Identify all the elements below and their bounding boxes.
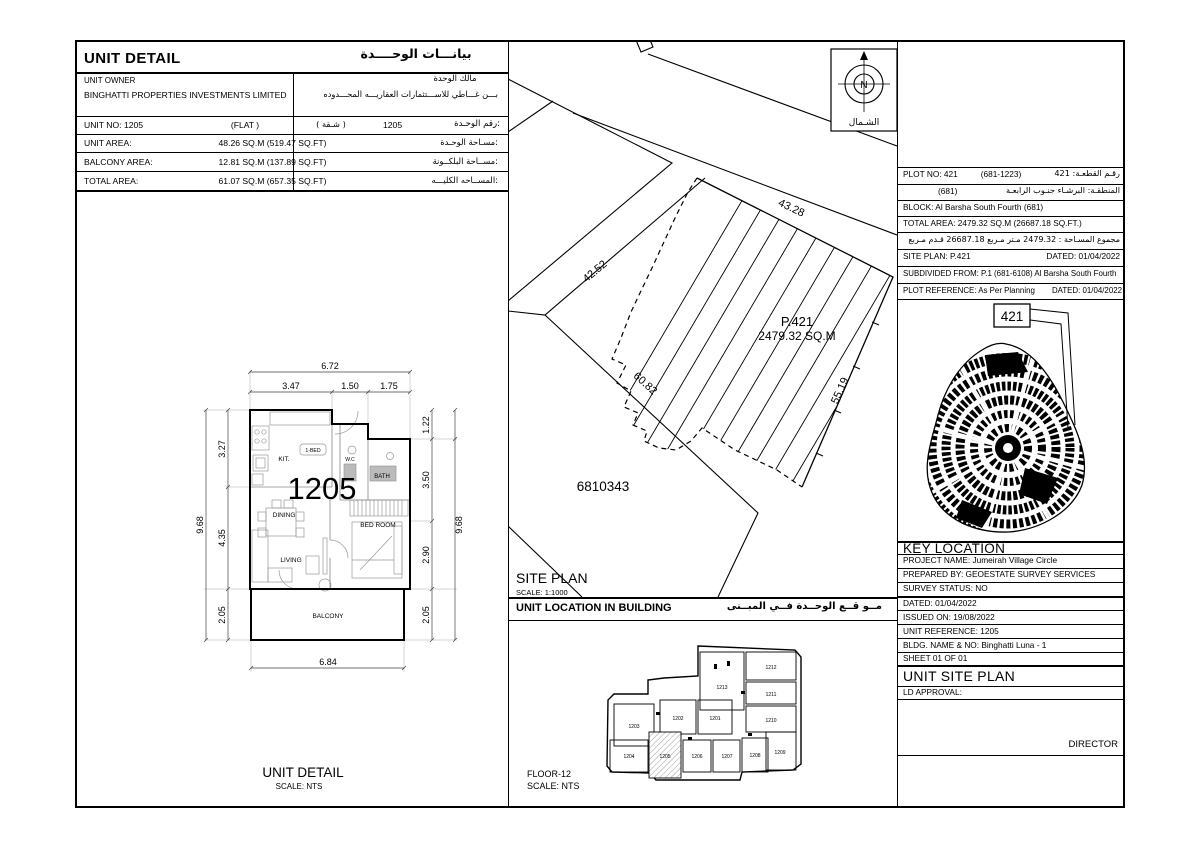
divider — [75, 116, 508, 117]
unit-label-1207: 1207 — [721, 754, 732, 760]
dim-right-4: 2.05 — [421, 606, 431, 624]
unit-floor-plan: 6.72 3.47 1.50 1.75 9.68 3.27 4.35 2.05 … — [75, 192, 508, 806]
divider — [897, 699, 1125, 700]
edge-road-dim: 42.52 — [581, 258, 610, 285]
edge-right-dim: 55.19 — [829, 376, 851, 406]
unit-label-1205: 1205 — [659, 754, 670, 760]
dim-right-1: 1.22 — [421, 416, 431, 434]
balcony-area-label-arabic: مســاحة البلكــونة: — [360, 157, 498, 167]
plot-no: PLOT NO: 421 — [903, 170, 958, 180]
divider — [75, 171, 508, 172]
dim-left-3: 2.05 — [217, 606, 227, 624]
north-compass: N الشـمال — [831, 49, 897, 131]
wc-label: W.C — [345, 457, 355, 463]
owner-label-arabic: مالك الوحدة — [410, 75, 500, 85]
dim-left-1: 3.27 — [217, 440, 227, 458]
total-area-label: TOTAL AREA: — [84, 177, 138, 187]
prepared-by-row: PREPARED BY: GEOESTATE SURVEY SERVICES — [903, 570, 1095, 580]
unit-detail-title: UNIT DETAIL — [84, 50, 181, 67]
divider — [897, 232, 1125, 233]
unit-label-1211: 1211 — [766, 692, 777, 698]
unit-no-value-arabic-side: 1205 — [383, 121, 402, 131]
dated-row: DATED: 01/04/2022 — [903, 599, 977, 609]
reference-dated: DATED: 01/04/2022 — [1040, 286, 1122, 295]
unit-area-label: UNIT AREA: — [84, 139, 132, 149]
bldg-name-row: BLDG. NAME & NO: Binghatti Luna - 1 — [903, 641, 1046, 651]
total-area-value: 61.07 SQ.M (657.35 SQ.FT) — [150, 177, 395, 187]
balcony-area-value: 12.81 SQ.M (137.89 SQ.FT) — [150, 158, 395, 168]
living-label: LIVING — [280, 557, 301, 564]
divider — [75, 134, 508, 135]
dim-left-2: 4.35 — [217, 529, 227, 547]
dim-top-total: 6.72 — [321, 361, 339, 371]
site-plan-dated: DATED: 01/04/2022 — [1000, 252, 1120, 262]
dim-right-3: 2.90 — [421, 546, 431, 564]
dim-left-total: 9.68 — [195, 516, 205, 534]
unit-reference-row: UNIT REFERENCE: 1205 — [903, 627, 999, 637]
ld-approval-row: LD APPROVAL: — [903, 688, 962, 698]
district-arabic: المنطقـة: البرشـاء جنـوب الرابعـة — [962, 186, 1120, 195]
dimension-lines — [204, 370, 457, 670]
project-name-row: PROJECT NAME: Jumeirah Village Circle — [903, 556, 1057, 566]
unit-label-1213: 1213 — [716, 685, 727, 691]
edge-bottom-dim: 60.82 — [631, 370, 659, 397]
building-panel-title: UNIT LOCATION IN BUILDING — [516, 602, 672, 615]
dim-right-2: 3.50 — [421, 471, 431, 489]
unit-label-1203: 1203 — [628, 724, 639, 730]
plot-area-label: 2479.32 SQ.M — [758, 329, 835, 343]
unit-label-1202: 1202 — [672, 716, 683, 722]
balcony-label: BALCONY — [312, 613, 344, 620]
extension-lines — [204, 370, 457, 672]
plot-number-label: P.421 — [781, 314, 813, 329]
district-paren: (681) — [938, 187, 957, 197]
site-plan-labels: 42.52 43.28 55.19 60.82 P.421 2479.32 SQ… — [516, 197, 851, 597]
owner-name-arabic: بـــن غـــاطي للاســـتثمارات العقاريـــه… — [300, 90, 498, 100]
neighbor-plot-label: 6810343 — [577, 479, 630, 494]
site-plan-title: SITE PLAN — [516, 570, 588, 586]
total-area-label-arabic: المســاحه الكليـــه: — [360, 176, 498, 186]
unit-type: (FLAT ) — [210, 121, 280, 131]
unit-label-1206: 1206 — [691, 754, 702, 760]
floor-plan-title: UNIT DETAIL — [262, 765, 344, 780]
plot-no-range: (681-1223) — [970, 170, 1032, 180]
block-row: BLOCK: Al Barsha South Fourth (681) — [903, 203, 1043, 213]
key-location-map: 421 — [897, 299, 1125, 541]
unit-no: UNIT NO: 1205 — [84, 121, 143, 131]
unit-no-label-arabic: رقم الوحـدة: — [410, 120, 502, 130]
bath-label: BATH — [374, 474, 390, 480]
building-door-marks — [656, 661, 752, 740]
compass-n-label: N — [860, 80, 867, 91]
edge-top-dim: 43.28 — [776, 197, 806, 220]
kitchen-label: KIT. — [278, 456, 289, 463]
total-area-row: TOTAL AREA: 2479.32 SQ.M (26687.18 SQ.FT… — [903, 219, 1082, 229]
dim-top-1: 3.47 — [282, 381, 300, 391]
building-panel-title-arabic: مــو قــع الوحــدة فــي المبــنى — [700, 601, 888, 613]
bedroom-label: BED ROOM — [360, 522, 395, 529]
sheet-row: SHEET 01 OF 01 — [903, 654, 967, 664]
owner-label: UNIT OWNER — [84, 76, 135, 85]
dimension-labels: 6.72 3.47 1.50 1.75 9.68 3.27 4.35 2.05 … — [195, 361, 464, 667]
unit-label-1210: 1210 — [765, 718, 776, 724]
building-floor-label: FLOOR-12 — [527, 769, 571, 779]
building-scale-label: SCALE: NTS — [527, 781, 580, 791]
unit-area-value: 48.26 SQ.M (519.47 SQ.FT) — [150, 139, 395, 149]
owner-name: BINGHATTI PROPERTIES INVESTMENTS LIMITED — [84, 91, 287, 101]
unit-number-label: 1205 — [288, 471, 357, 506]
dim-right-total: 9.68 — [454, 516, 464, 534]
floor-plan-scale: SCALE: NTS — [276, 782, 323, 791]
survey-status-row: SURVEY STATUS: NO — [903, 584, 988, 594]
issued-on-row: ISSUED ON: 19/08/2022 — [903, 613, 995, 623]
unit-area-label-arabic: مسـاحة الوحـدة: — [360, 138, 498, 148]
site-plan-scale: SCALE: 1:1000 — [516, 588, 568, 597]
unit-label-1209: 1209 — [774, 750, 785, 756]
divider — [293, 72, 294, 191]
subdivided-row: SUBDIVIDED FROM: P.1 (681-6108) Al Barsh… — [903, 269, 1116, 278]
reference-row: PLOT REFERENCE: As Per Planning — [903, 286, 1035, 295]
map-plot-label: 421 — [1001, 309, 1024, 324]
site-plan-drawing: 42.52 43.28 55.19 60.82 P.421 2479.32 SQ… — [508, 40, 897, 597]
divider — [508, 597, 897, 599]
dim-top-3: 1.75 — [380, 381, 398, 391]
director-label: DIRECTOR — [1010, 740, 1118, 751]
unit-label-1204: 1204 — [623, 754, 634, 760]
dim-top-2: 1.50 — [341, 381, 359, 391]
total-area-arabic-row: مجموع المسـاحة : 2479.32 مـتر مـربع 2668… — [900, 235, 1120, 244]
unit-label-1201: 1201 — [709, 716, 720, 722]
plot-no-arabic: رقـم القطعـة: 421 — [1034, 169, 1120, 178]
unit-label-1208: 1208 — [749, 753, 760, 759]
divider — [75, 152, 508, 153]
divider — [897, 755, 1125, 756]
bed-tag-label: 1-BED — [305, 448, 321, 454]
compass-north-arabic: الشـمال — [849, 118, 879, 128]
dim-bottom: 6.84 — [319, 657, 337, 667]
unit-detail-title-arabic: بيانـــات الوحــــدة — [330, 47, 502, 61]
unit-type-arabic: ( شـقة ) — [300, 120, 362, 130]
divider — [897, 283, 1125, 284]
survey-document-sheet: UNIT DETAIL بيانـــات الوحــــدة UNIT OW… — [0, 0, 1200, 848]
site-plan-row: SITE PLAN: P.421 — [903, 252, 971, 262]
building-location-plan: 1213 1212 1211 1210 1209 1208 1207 1206 … — [508, 621, 897, 807]
balcony-area-label: BALCONY AREA: — [84, 158, 153, 168]
unit-label-1212: 1212 — [765, 665, 776, 671]
unit-site-plan-title: UNIT SITE PLAN — [903, 668, 1015, 684]
divider — [897, 266, 1125, 267]
dining-label: DINING — [273, 512, 296, 519]
divider — [897, 665, 1125, 667]
